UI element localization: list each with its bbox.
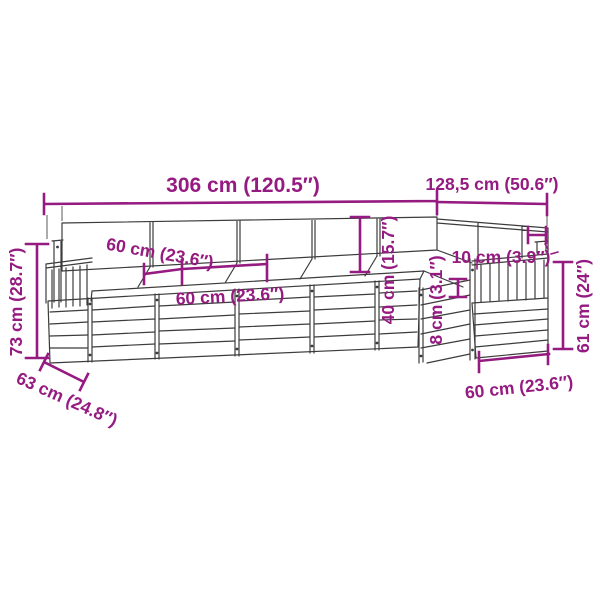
- dim-label-seat-width: 60 cm (23.6″): [175, 283, 284, 309]
- dim-label-end-seat-width: 60 cm (23.6″): [464, 371, 574, 402]
- dim-label-side-height: 61 cm (24″): [573, 259, 593, 353]
- dimension-overall-depth: 63 cm (24.8″): [13, 354, 120, 430]
- dim-line-end-seat-width: [479, 345, 549, 372]
- diagram-canvas: 306 cm (120.5″) 128,5 cm (50.6″) 73 cm (…: [0, 0, 600, 600]
- dim-label-seat-depth: 60 cm (23.6″): [105, 234, 215, 273]
- dim-line-overall-height: [26, 244, 48, 358]
- sofa-drawing: [46, 205, 548, 363]
- sofa-dimension-diagram: 306 cm (120.5″) 128,5 cm (50.6″) 73 cm (…: [0, 0, 600, 600]
- dimension-seat-depth: 60 cm (23.6″): [105, 234, 215, 284]
- dim-label-overall-depth: 63 cm (24.8″): [13, 368, 120, 430]
- dim-line-wing-width: [437, 194, 547, 215]
- dimension-wing-width: 128,5 cm (50.6″): [426, 174, 559, 215]
- left-armrest: [46, 240, 92, 308]
- dim-bracket-armrest-width: [528, 227, 546, 243]
- dim-label-armrest-width: 10 cm (3.9″): [452, 247, 551, 267]
- dim-line-backrest-height: [351, 217, 369, 272]
- dim-label-armrest-clearance: 8 cm (3.1″): [426, 255, 446, 344]
- dim-label-overall-height: 73 cm (28.7″): [6, 248, 26, 357]
- dim-label-total-width: 306 cm (120.5″): [166, 174, 320, 197]
- dimension-side-height: 61 cm (24″): [554, 259, 593, 353]
- dim-label-backrest-height: 40 cm (15.7″): [378, 216, 398, 325]
- dim-line-side-height: [554, 262, 572, 349]
- dimension-total-width: 306 cm (120.5″): [44, 174, 437, 214]
- dim-label-wing-width: 128,5 cm (50.6″): [426, 174, 559, 194]
- dimension-overall-height: 73 cm (28.7″): [6, 244, 48, 358]
- dimension-armrest-width: 10 cm (3.9″): [452, 227, 558, 269]
